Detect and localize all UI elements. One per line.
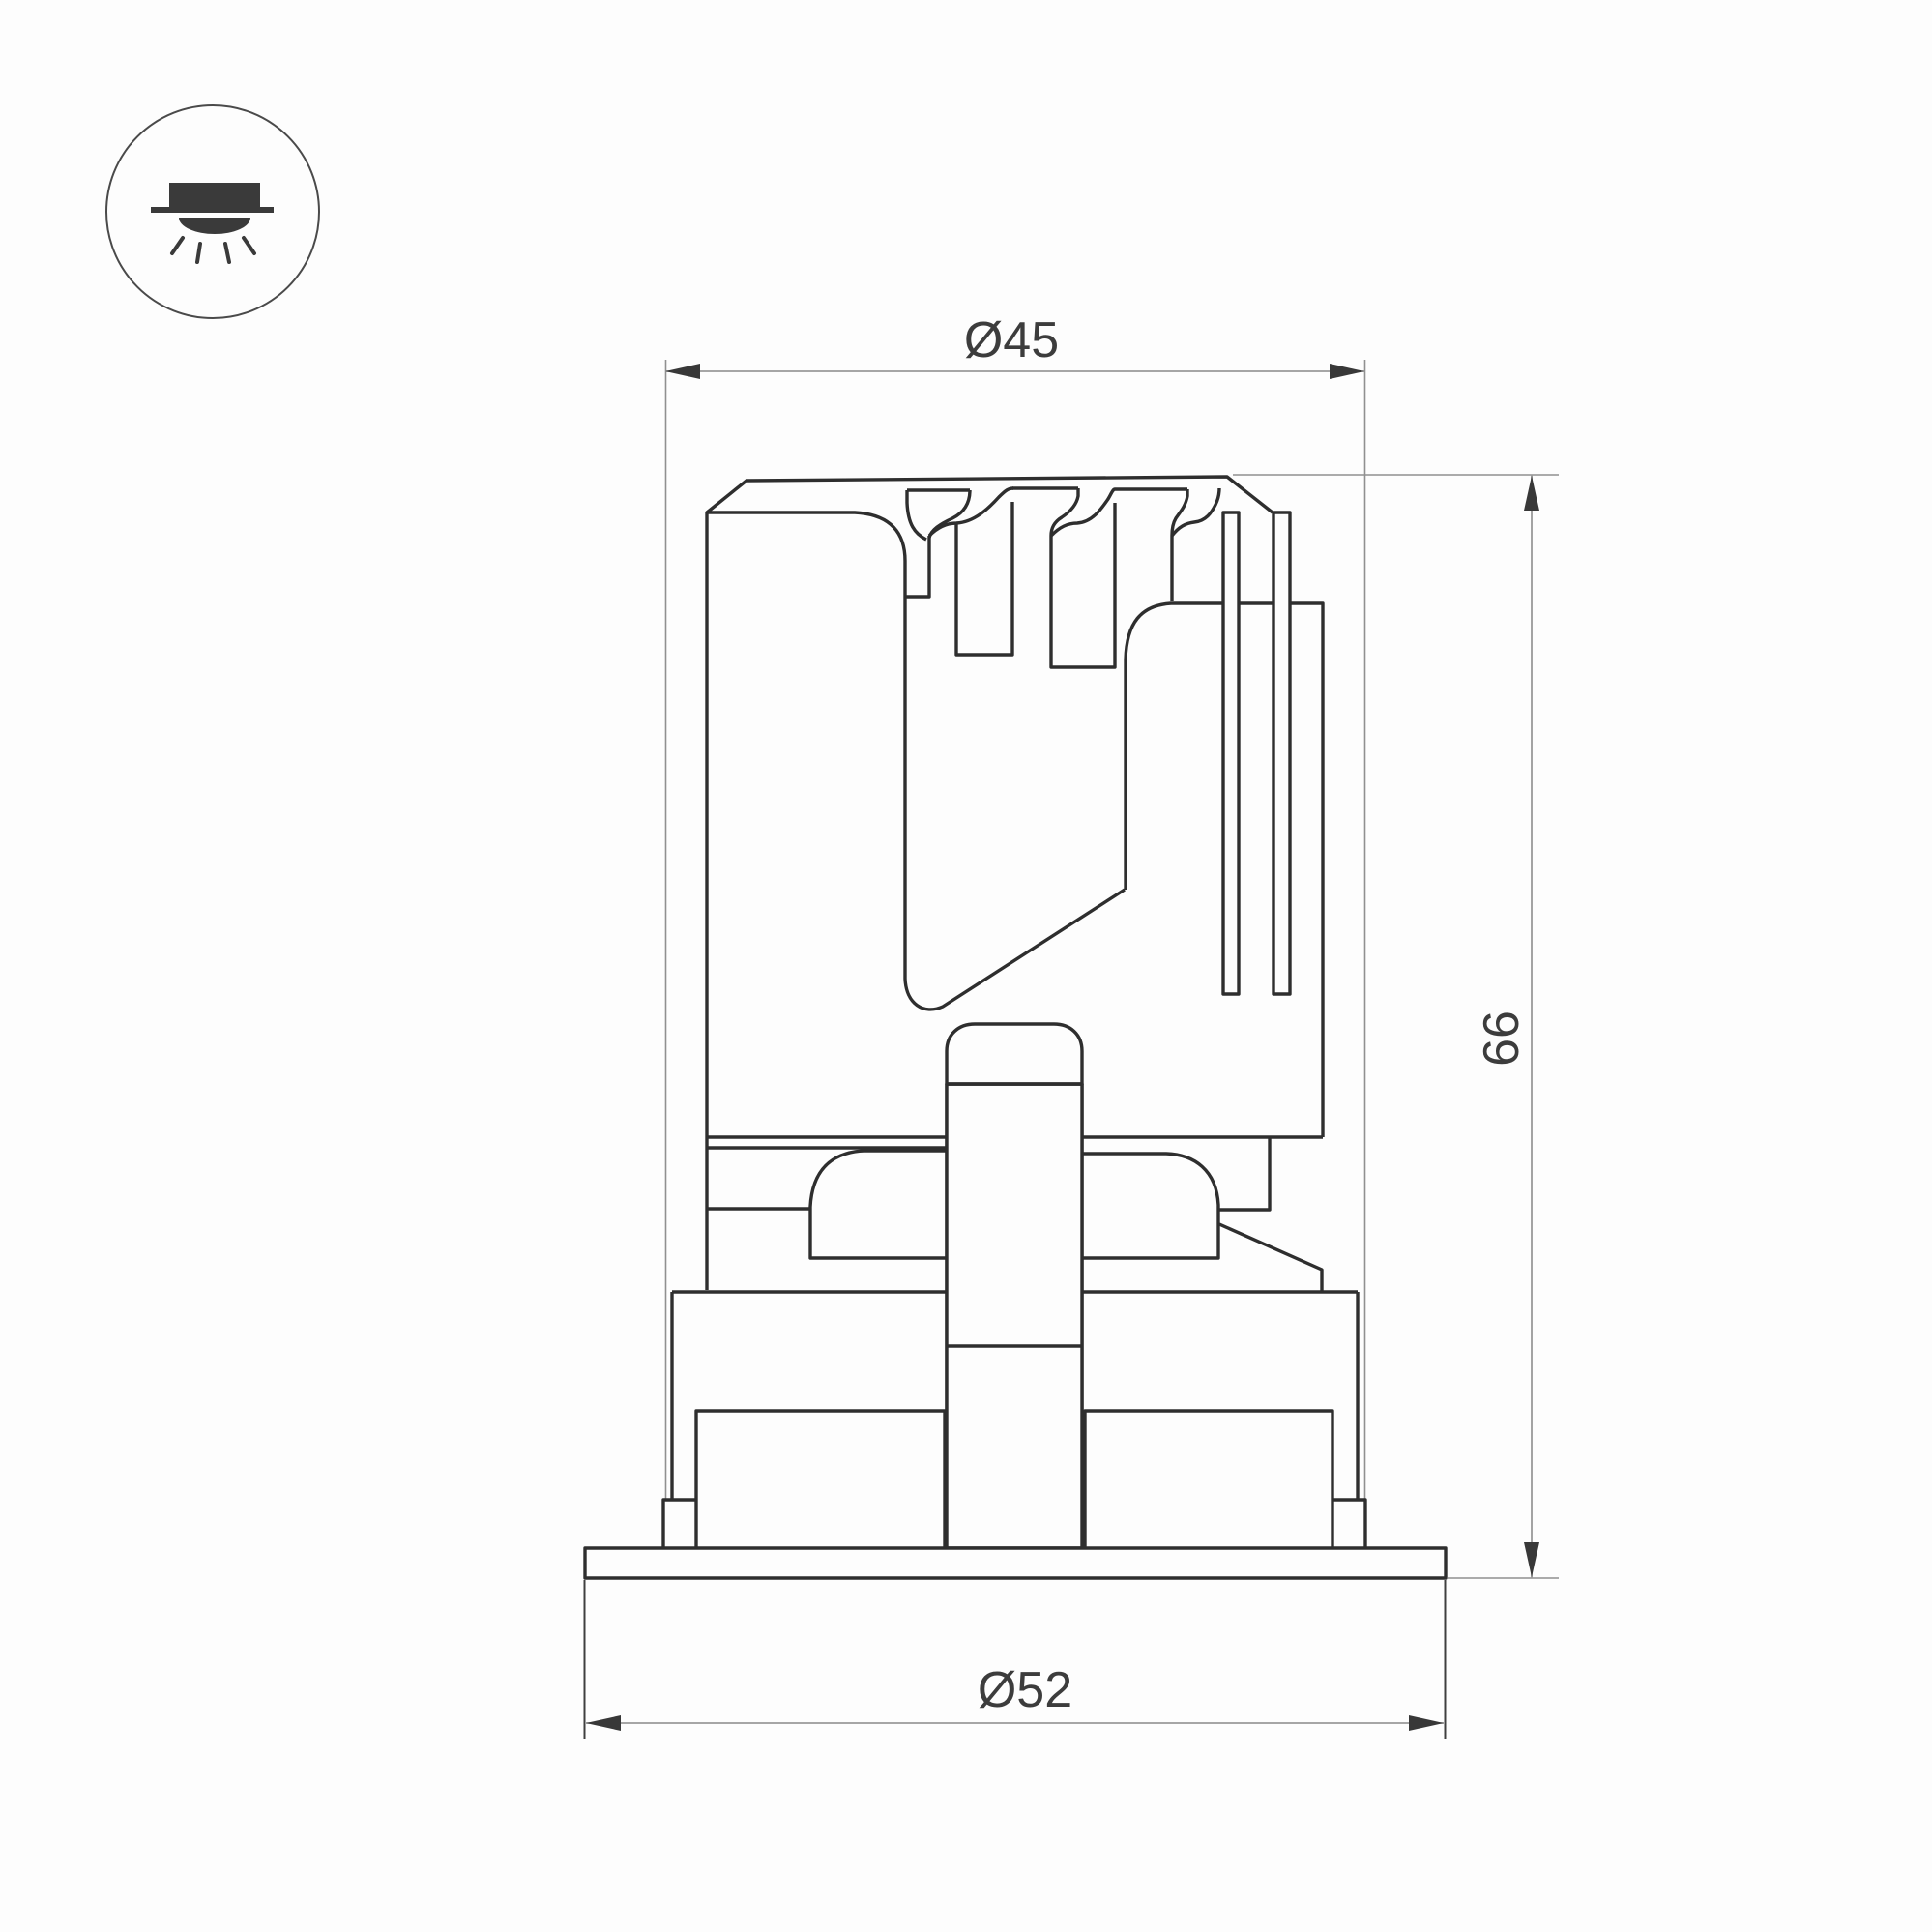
svg-text:Ø52: Ø52 xyxy=(978,1662,1072,1718)
svg-text:Ø45: Ø45 xyxy=(964,312,1059,368)
svg-text:66: 66 xyxy=(1474,1010,1530,1067)
